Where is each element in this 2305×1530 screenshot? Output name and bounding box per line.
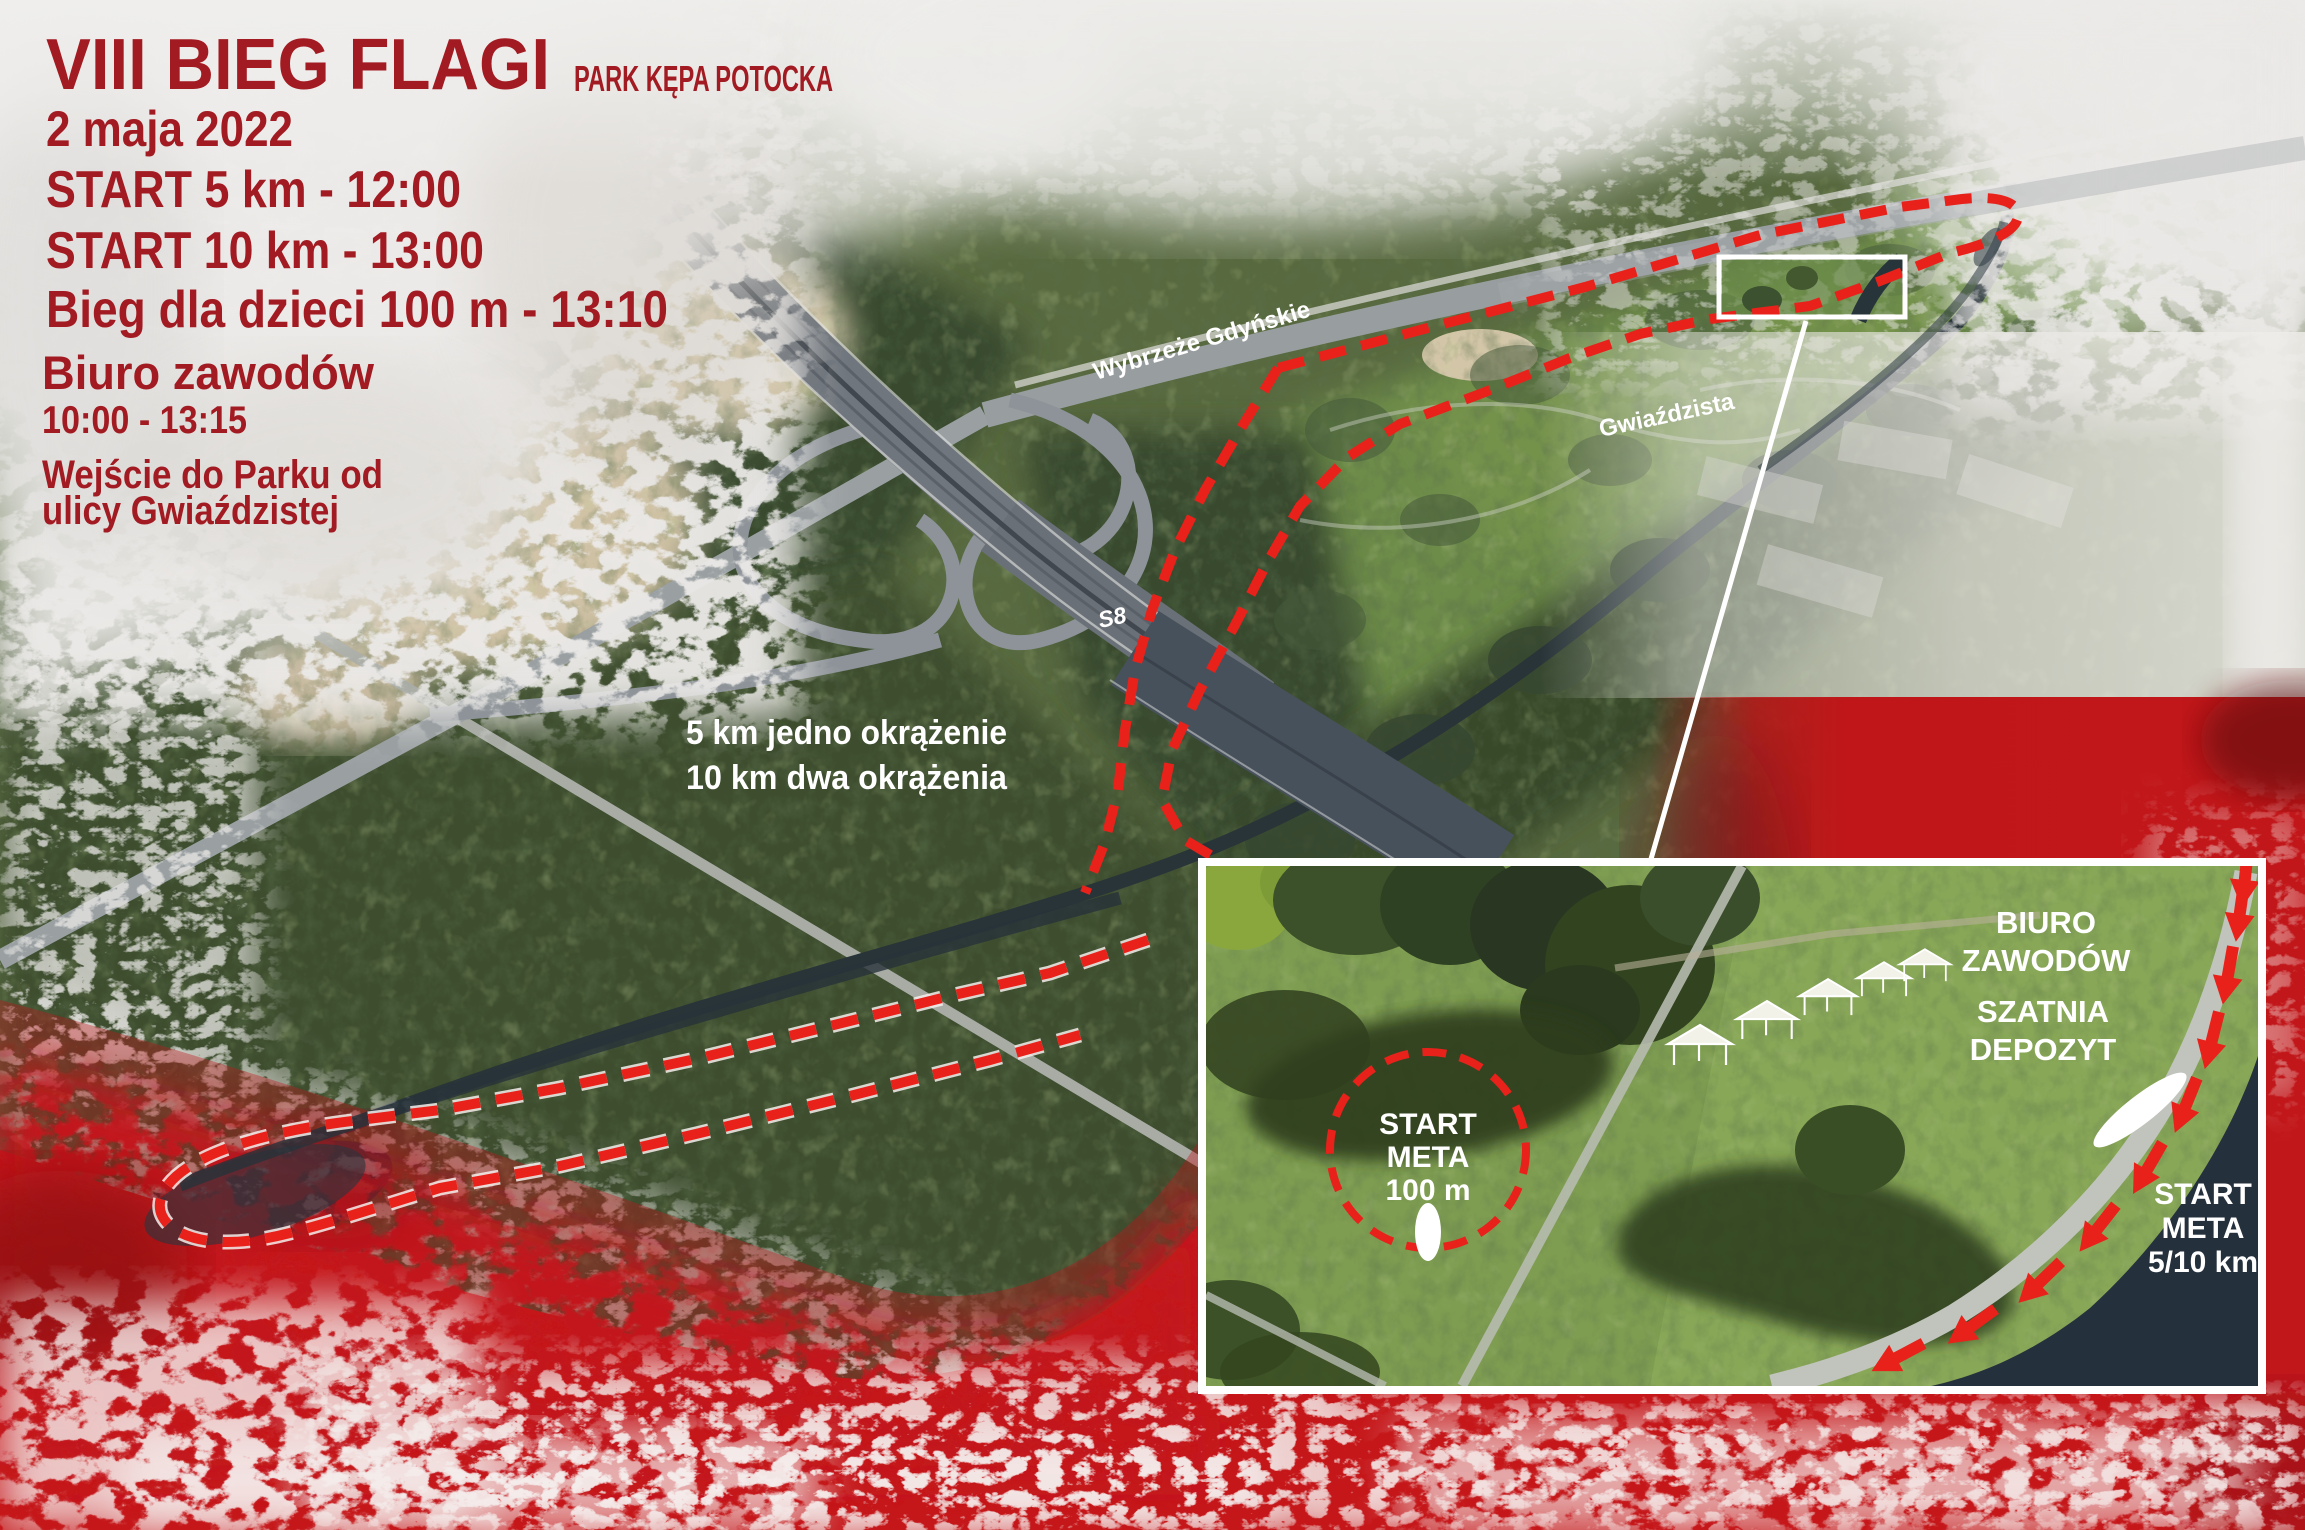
svg-text:Biuro zawodów: Biuro zawodów	[42, 346, 374, 399]
svg-text:BIURO: BIURO	[1996, 905, 2096, 940]
svg-text:Bieg dla dzieci 100 m - 13:10: Bieg dla dzieci 100 m - 13:10	[46, 281, 668, 339]
svg-text:DEPOZYT: DEPOZYT	[1970, 1032, 2116, 1067]
svg-text:ZAWODÓW: ZAWODÓW	[1962, 942, 2131, 978]
svg-text:5/10 km: 5/10 km	[2148, 1246, 2258, 1279]
svg-text:START 10 km - 13:00: START 10 km - 13:00	[46, 222, 484, 280]
svg-text:PARK KĘPA POTOCKA: PARK KĘPA POTOCKA	[574, 58, 833, 99]
svg-text:START 5 km - 12:00: START 5 km - 12:00	[46, 161, 461, 219]
svg-text:10 km dwa okrążenia: 10 km dwa okrążenia	[686, 759, 1008, 797]
svg-text:100 m: 100 m	[1385, 1174, 1470, 1207]
svg-text:2 maja 2022: 2 maja 2022	[46, 101, 293, 157]
svg-text:10:00 - 13:15: 10:00 - 13:15	[42, 399, 247, 442]
svg-text:META: META	[2162, 1212, 2245, 1245]
svg-text:SZATNIA: SZATNIA	[1977, 994, 2109, 1029]
svg-text:META: META	[1387, 1141, 1470, 1174]
svg-text:START: START	[2154, 1178, 2252, 1211]
svg-text:VIII BIEG FLAGI: VIII BIEG FLAGI	[46, 25, 550, 105]
svg-text:START: START	[1379, 1108, 1477, 1141]
svg-text:5 km jedno okrążenie: 5 km jedno okrążenie	[686, 714, 1007, 752]
svg-text:ulicy Gwiaździstej: ulicy Gwiaździstej	[42, 489, 339, 533]
